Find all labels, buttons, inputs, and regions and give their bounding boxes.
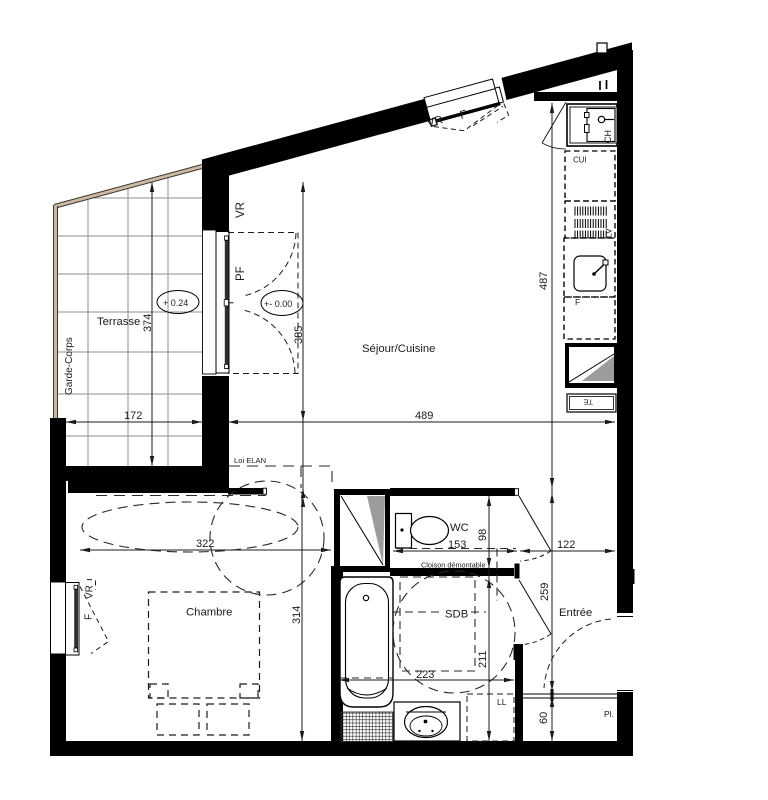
svg-text:Terrasse: Terrasse: [97, 316, 140, 328]
svg-text:Garde-Corps: Garde-Corps: [64, 337, 75, 395]
svg-text:259: 259: [539, 583, 551, 601]
svg-text:+ 0.24: + 0.24: [163, 298, 188, 308]
svg-text:PF: PF: [235, 266, 247, 281]
svg-text:385: 385: [293, 326, 305, 344]
svg-text:211: 211: [477, 650, 489, 668]
svg-text:98: 98: [477, 529, 489, 541]
svg-text:TE: TE: [583, 398, 593, 407]
svg-text:153: 153: [448, 539, 466, 551]
svg-text:F: F: [84, 614, 95, 620]
svg-text:VR: VR: [235, 202, 247, 218]
svg-text:487: 487: [538, 272, 550, 290]
svg-text:374: 374: [142, 314, 154, 332]
svg-text:Loi ELAN: Loi ELAN: [234, 456, 266, 465]
svg-text:F: F: [575, 297, 580, 307]
svg-text:223: 223: [416, 669, 434, 681]
svg-text:122: 122: [557, 539, 575, 551]
svg-text:+- 0.00: +- 0.00: [264, 299, 292, 309]
svg-text:WC: WC: [450, 522, 469, 534]
svg-text:Chambre: Chambre: [186, 607, 232, 619]
svg-text:CH: CH: [603, 130, 613, 143]
svg-text:LV: LV: [604, 228, 614, 238]
svg-text:SDB: SDB: [445, 609, 468, 621]
svg-text:Cloison démontable: Cloison démontable: [421, 561, 486, 570]
svg-text:Pl.: Pl.: [604, 709, 614, 719]
svg-text:489: 489: [415, 410, 433, 422]
svg-text:172: 172: [124, 410, 142, 422]
svg-text:Séjour/Cuisine: Séjour/Cuisine: [362, 343, 435, 355]
svg-text:314: 314: [291, 606, 303, 624]
svg-text:60: 60: [538, 712, 550, 724]
svg-text:VR: VR: [85, 585, 96, 599]
svg-text:CUI: CUI: [573, 156, 587, 165]
svg-text:LL: LL: [497, 697, 507, 707]
svg-text:322: 322: [196, 538, 214, 550]
svg-text:Entrée: Entrée: [559, 607, 592, 619]
